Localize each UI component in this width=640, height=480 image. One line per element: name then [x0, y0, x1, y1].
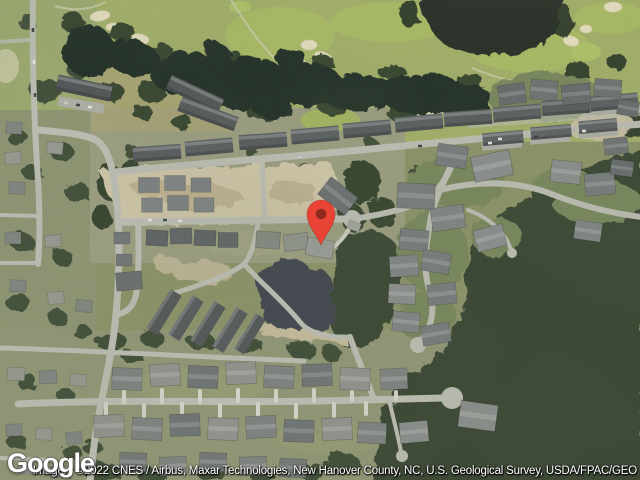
map-attribution: Imagery ©2022 CNES / Airbus, Maxar Techn…: [0, 465, 637, 477]
pin-dot: [316, 209, 327, 220]
location-pin[interactable]: [301, 194, 341, 248]
google-logo[interactable]: Google: [7, 448, 94, 479]
map-viewport[interactable]: Google Imagery ©2022 CNES / Airbus, Maxa…: [0, 0, 640, 480]
pin-body: [307, 200, 335, 245]
